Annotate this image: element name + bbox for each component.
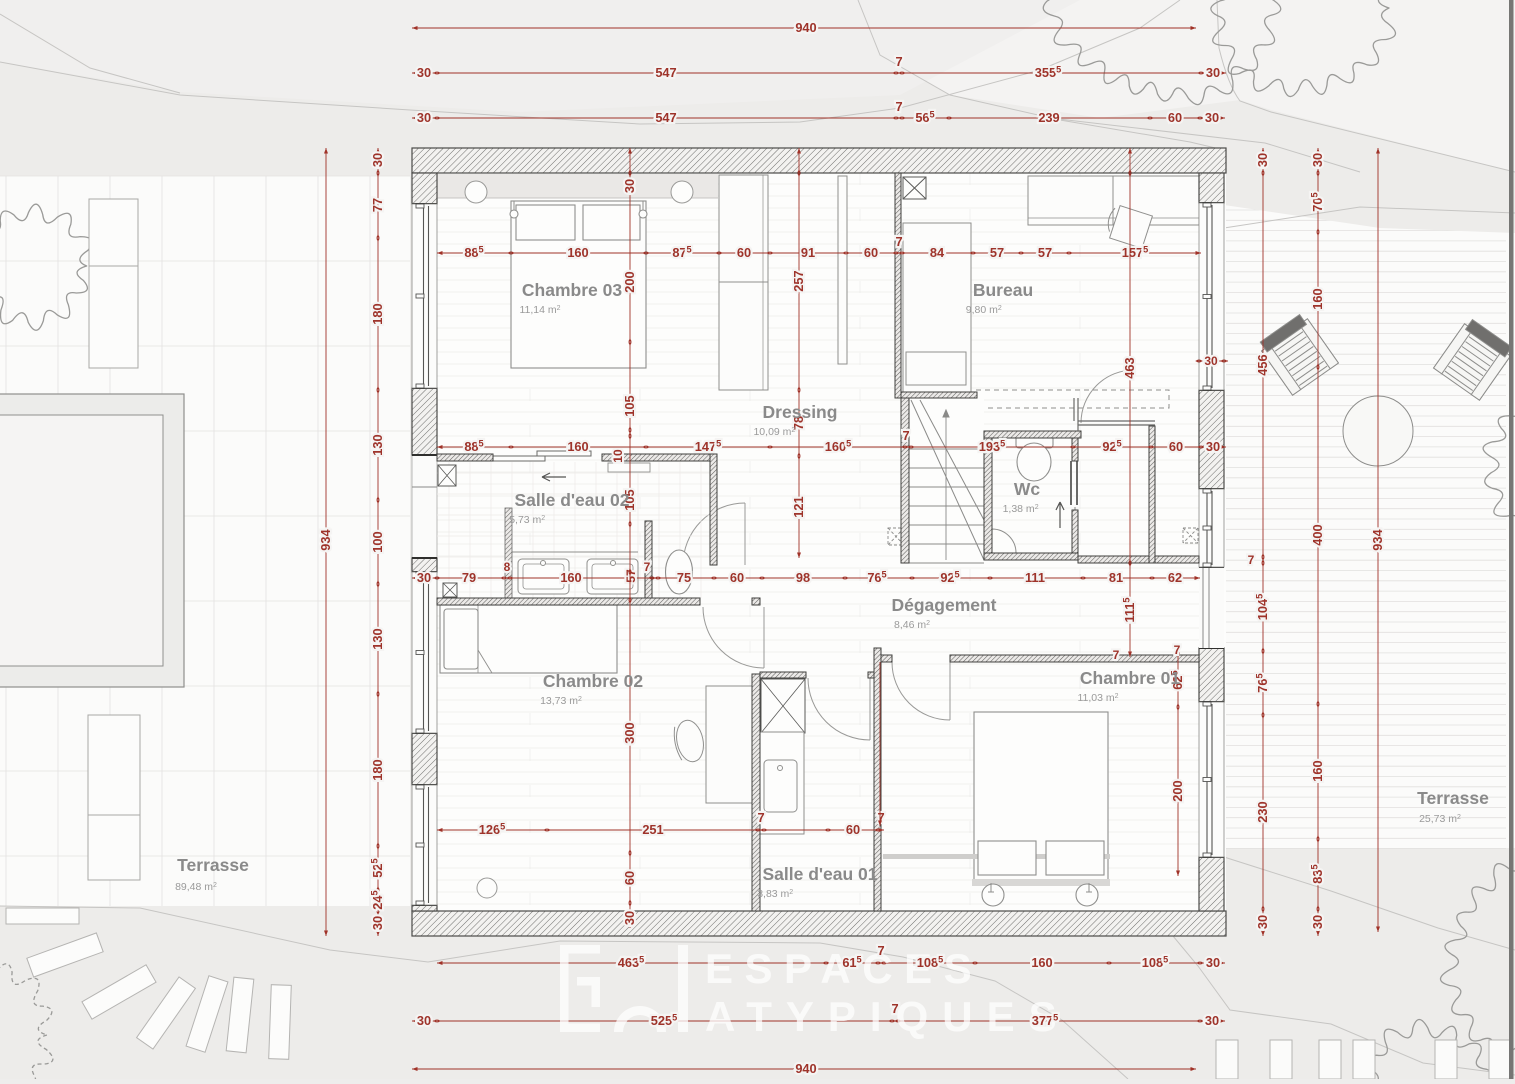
svg-text:9,80 m2: 9,80 m2 bbox=[966, 304, 1002, 316]
svg-text:200: 200 bbox=[622, 271, 637, 292]
svg-text:3,83 m2: 3,83 m2 bbox=[757, 888, 793, 900]
svg-text:Bureau: Bureau bbox=[973, 280, 1033, 300]
svg-text:Chambre 02: Chambre 02 bbox=[543, 671, 643, 691]
svg-text:8: 8 bbox=[504, 560, 511, 574]
svg-text:75: 75 bbox=[677, 570, 691, 585]
svg-text:30: 30 bbox=[1206, 65, 1220, 80]
svg-text:91: 91 bbox=[801, 245, 815, 260]
svg-text:130: 130 bbox=[370, 628, 385, 649]
svg-text:Chambre 01: Chambre 01 bbox=[1080, 668, 1180, 688]
svg-text:111: 111 bbox=[1025, 570, 1045, 585]
svg-text:251: 251 bbox=[642, 822, 663, 837]
svg-text:463: 463 bbox=[1122, 357, 1137, 378]
svg-text:79: 79 bbox=[462, 570, 476, 585]
svg-text:547: 547 bbox=[655, 65, 676, 80]
svg-text:257: 257 bbox=[791, 270, 806, 291]
svg-text:30: 30 bbox=[622, 179, 637, 193]
svg-text:60: 60 bbox=[864, 245, 878, 260]
svg-text:30: 30 bbox=[370, 153, 385, 167]
svg-text:180: 180 bbox=[370, 759, 385, 780]
svg-text:230: 230 bbox=[1255, 801, 1270, 822]
svg-text:Dressing: Dressing bbox=[763, 402, 838, 422]
svg-text:13,73 m2: 13,73 m2 bbox=[540, 695, 582, 707]
svg-text:30: 30 bbox=[622, 911, 637, 925]
svg-text:77: 77 bbox=[370, 198, 385, 212]
svg-text:60: 60 bbox=[737, 245, 751, 260]
svg-text:239: 239 bbox=[1038, 110, 1059, 125]
svg-text:ATYPIQUES: ATYPIQUES bbox=[705, 993, 1071, 1040]
svg-text:7: 7 bbox=[877, 943, 884, 958]
svg-text:60: 60 bbox=[1168, 110, 1182, 125]
svg-text:400: 400 bbox=[1310, 524, 1325, 545]
svg-text:30: 30 bbox=[1255, 915, 1270, 929]
svg-text:11,14 m2: 11,14 m2 bbox=[519, 304, 560, 316]
svg-text:60: 60 bbox=[730, 570, 744, 585]
svg-text:7: 7 bbox=[1248, 553, 1255, 567]
svg-text:105: 105 bbox=[622, 395, 637, 416]
svg-text:Wc: Wc bbox=[1014, 479, 1041, 499]
svg-text:30: 30 bbox=[1205, 1013, 1219, 1028]
svg-text:130: 130 bbox=[370, 434, 385, 455]
svg-text:160: 160 bbox=[560, 570, 581, 585]
svg-text:30: 30 bbox=[417, 65, 431, 80]
svg-text:98: 98 bbox=[796, 570, 810, 585]
svg-text:60: 60 bbox=[1169, 439, 1183, 454]
svg-text:100: 100 bbox=[370, 531, 385, 552]
svg-text:180: 180 bbox=[370, 303, 385, 324]
svg-text:7: 7 bbox=[891, 1001, 898, 1016]
svg-text:Salle d'eau 01: Salle d'eau 01 bbox=[762, 864, 877, 884]
svg-text:11,03 m2: 11,03 m2 bbox=[1077, 692, 1118, 704]
svg-text:57: 57 bbox=[990, 245, 1004, 260]
svg-text:7: 7 bbox=[895, 99, 902, 114]
svg-text:160: 160 bbox=[1031, 955, 1052, 970]
svg-text:30: 30 bbox=[1310, 153, 1325, 167]
svg-text:89,48 m2: 89,48 m2 bbox=[175, 881, 217, 893]
svg-text:940: 940 bbox=[795, 1061, 816, 1076]
svg-text:160: 160 bbox=[1310, 760, 1325, 781]
svg-text:60: 60 bbox=[846, 822, 860, 837]
svg-text:5,73 m2: 5,73 m2 bbox=[509, 514, 545, 526]
svg-text:Terrasse: Terrasse bbox=[177, 855, 249, 875]
svg-text:81: 81 bbox=[1109, 570, 1123, 585]
svg-text:160: 160 bbox=[1310, 288, 1325, 309]
svg-text:62: 62 bbox=[1168, 570, 1182, 585]
svg-text:7: 7 bbox=[902, 428, 909, 443]
svg-text:57: 57 bbox=[1038, 245, 1052, 260]
svg-text:160: 160 bbox=[567, 439, 588, 454]
svg-text:1,38 m2: 1,38 m2 bbox=[1003, 503, 1039, 515]
svg-text:7: 7 bbox=[1174, 643, 1181, 657]
svg-text:934: 934 bbox=[318, 528, 333, 550]
svg-text:84: 84 bbox=[930, 245, 945, 260]
svg-text:934: 934 bbox=[1370, 528, 1385, 550]
svg-text:7: 7 bbox=[757, 810, 764, 825]
svg-text:60: 60 bbox=[622, 871, 637, 885]
svg-text:10,09 m2: 10,09 m2 bbox=[753, 426, 795, 438]
svg-text:7: 7 bbox=[895, 234, 902, 249]
svg-text:25,73 m2: 25,73 m2 bbox=[1419, 813, 1461, 825]
svg-text:30: 30 bbox=[1206, 955, 1220, 970]
svg-text:30: 30 bbox=[417, 570, 431, 585]
svg-text:940: 940 bbox=[795, 20, 816, 35]
svg-text:160: 160 bbox=[567, 245, 588, 260]
svg-text:Salle d'eau 02: Salle d'eau 02 bbox=[514, 490, 629, 510]
svg-text:30: 30 bbox=[1204, 354, 1218, 368]
svg-text:200: 200 bbox=[1170, 780, 1185, 801]
svg-text:300: 300 bbox=[622, 722, 637, 743]
svg-text:121: 121 bbox=[791, 496, 806, 517]
svg-text:7: 7 bbox=[895, 54, 902, 69]
svg-text:Chambre 03: Chambre 03 bbox=[522, 280, 622, 300]
svg-text:Dégagement: Dégagement bbox=[891, 595, 996, 615]
svg-text:456: 456 bbox=[1255, 354, 1270, 375]
svg-text:30: 30 bbox=[1206, 439, 1220, 454]
svg-text:Terrasse: Terrasse bbox=[1417, 788, 1489, 808]
svg-text:30: 30 bbox=[1205, 110, 1219, 125]
svg-text:30: 30 bbox=[1255, 153, 1270, 167]
svg-text:30: 30 bbox=[370, 916, 385, 930]
svg-text:7: 7 bbox=[644, 560, 651, 574]
svg-text:547: 547 bbox=[655, 110, 676, 125]
svg-text:10: 10 bbox=[611, 449, 625, 463]
svg-text:8,46 m2: 8,46 m2 bbox=[894, 619, 930, 631]
svg-text:7: 7 bbox=[1113, 648, 1120, 662]
svg-text:30: 30 bbox=[1310, 915, 1325, 929]
svg-text:30: 30 bbox=[417, 1013, 431, 1028]
svg-text:30: 30 bbox=[417, 110, 431, 125]
